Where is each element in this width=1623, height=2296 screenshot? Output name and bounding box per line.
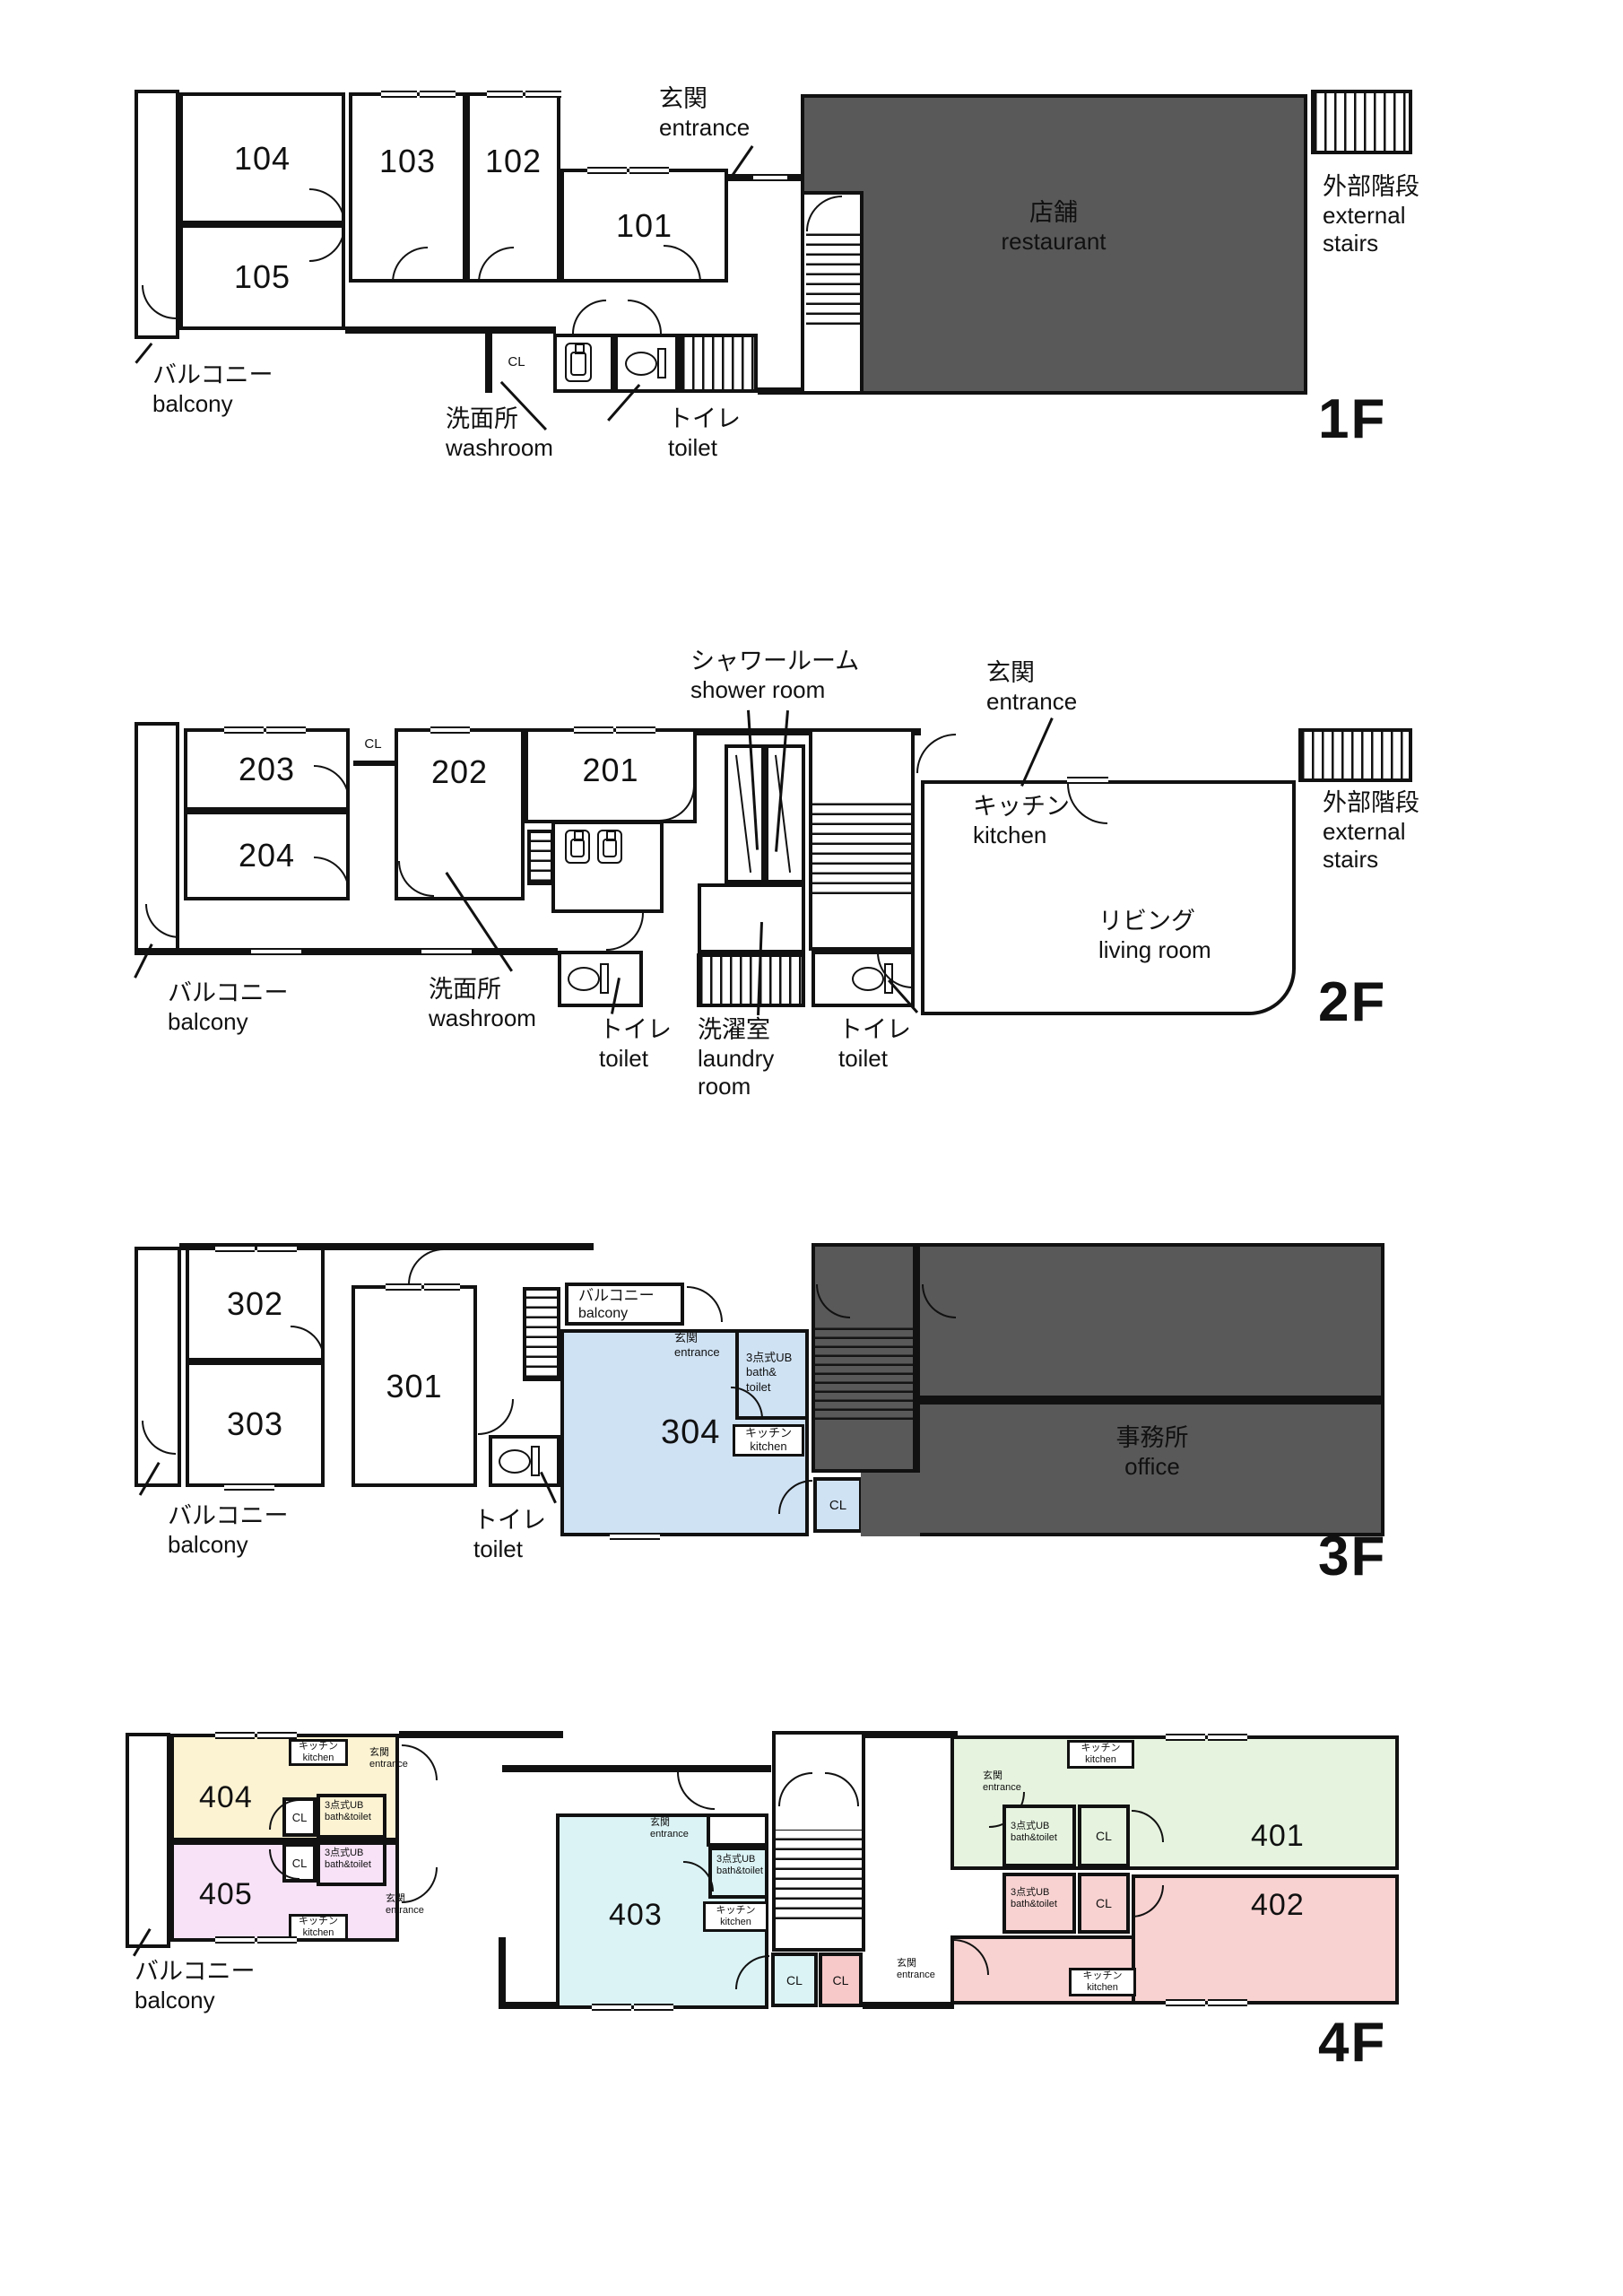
balcony-strip	[126, 1733, 170, 1948]
outer-wall	[499, 1937, 506, 2009]
entrance-label: 玄関entrance	[897, 1958, 935, 1981]
door-swing-icon	[402, 1867, 438, 1903]
bath-unit-cell: 3点式UBbath&toilet	[1002, 1805, 1076, 1867]
bath-unit-cell: 3点式UBbath&toilet	[1002, 1873, 1076, 1934]
window	[592, 2004, 631, 2011]
kitchen-box: キッチンkitchen	[289, 1914, 348, 1941]
balcony-label: バルコニーbalcony	[135, 1958, 255, 2014]
floor-plan-4f: 404 キッチンkitchen CL 3点式UBbath&toilet 玄関en…	[0, 0, 1623, 2296]
corridor-wall	[502, 1765, 771, 1772]
window	[1208, 1734, 1247, 1741]
entrance-label: 玄関entrance	[983, 1770, 1021, 1794]
room-402-label: 402	[1251, 1888, 1305, 1923]
cl-cell: CL	[1078, 1805, 1130, 1867]
window	[1166, 1734, 1205, 1741]
outer-wall	[499, 2002, 563, 2009]
window	[634, 2004, 673, 2011]
window	[257, 1732, 297, 1739]
kitchen-box: キッチンkitchen	[289, 1739, 348, 1766]
window	[215, 1732, 255, 1739]
cl-cell: CL	[819, 1952, 863, 2007]
cl-cell: CL	[771, 1952, 818, 2007]
door-swing-icon	[677, 1772, 715, 1810]
bath-unit-cell: 3点式UBbath&toilet	[708, 1847, 768, 1899]
kitchen-box: キッチンkitchen	[1069, 1968, 1136, 1996]
kitchen-box: キッチンkitchen	[703, 1901, 768, 1932]
outer-wall	[863, 2002, 954, 2009]
outer-wall	[863, 1731, 958, 1738]
cl-cell: CL	[1078, 1873, 1130, 1934]
room-403-notch	[707, 1817, 765, 1847]
entrance-label: 玄関entrance	[650, 1817, 689, 1840]
stairs	[776, 1830, 862, 1919]
bath-unit-cell: 3点式UBbath&toilet	[317, 1841, 386, 1886]
bath-unit-cell: 3点式UBbath&toilet	[317, 1794, 386, 1839]
door-swing-icon	[402, 1744, 438, 1780]
floor-plan-canvas: 104 105 103 102 101 CL 玄関entrance 店舗re	[0, 0, 1623, 2296]
window	[215, 1936, 255, 1944]
floor-label-4f: 4F	[1318, 2011, 1386, 2074]
window	[1208, 1999, 1247, 2006]
room-401-label: 401	[1251, 1819, 1305, 1854]
window	[257, 1936, 297, 1944]
kitchen-box: キッチンkitchen	[1067, 1740, 1134, 1769]
window	[1166, 1999, 1205, 2006]
outer-wall	[399, 1731, 563, 1738]
